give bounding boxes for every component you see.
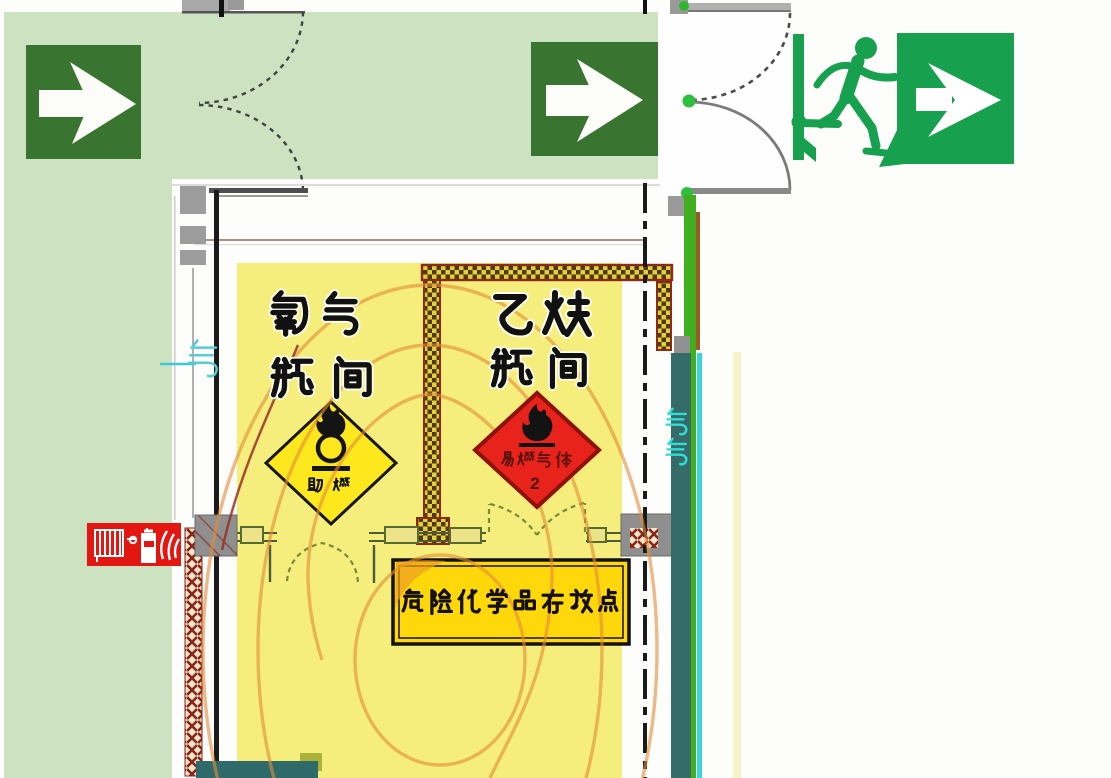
svg-text:2: 2 [530, 474, 539, 493]
